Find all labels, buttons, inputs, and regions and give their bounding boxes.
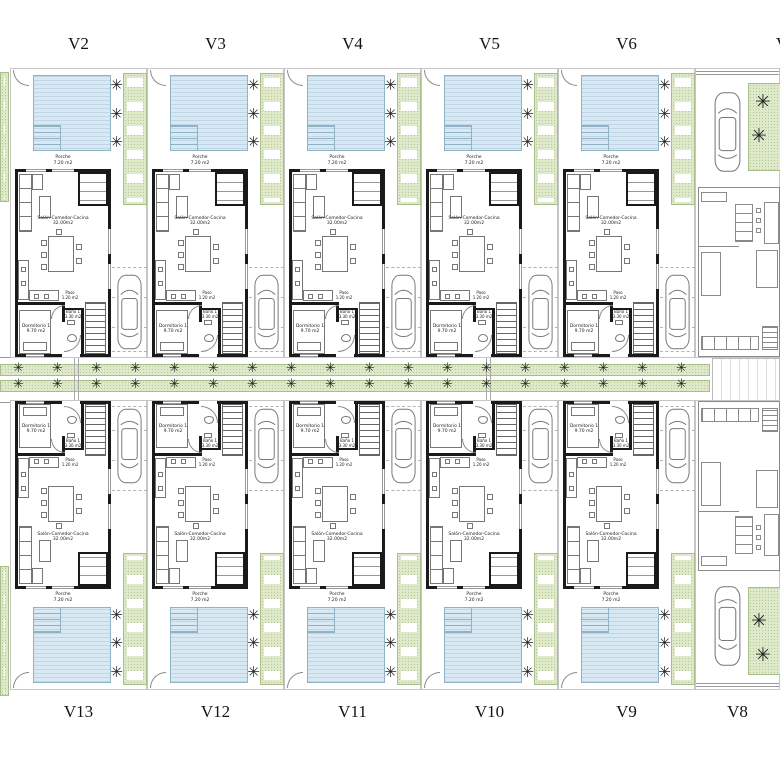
sink [569,267,574,272]
house-outline: Salón-Comedor-Cocina 32.00m2 [15,169,111,357]
garden-gate-arc [561,70,577,86]
sink [171,294,176,299]
chair [452,240,458,246]
swimming-pool [33,75,111,151]
stool [756,208,761,213]
wardrobe [352,172,382,206]
swimming-pool [581,607,659,683]
house-outline: Salón-Comedor-Cocina 32.00m2 [15,401,111,589]
chair [178,512,184,518]
deck-slats [675,78,691,202]
dining-table [185,486,211,522]
room-label-salon: Salón-Comedor-Cocina 32.00m2 [300,216,374,226]
kitchen-counter [566,260,577,300]
unit-label-partial: V [752,34,780,54]
hob [44,294,49,299]
swimming-pool [170,75,248,151]
window [519,469,522,494]
hob [592,294,597,299]
chair [178,500,184,506]
bathroom-sink [615,320,623,325]
staircase [222,404,243,456]
palm-tree-icon: ✳ [90,362,103,375]
chair [315,264,321,270]
toilet [615,334,625,342]
palm-tree-icon: ✳ [109,135,124,150]
deck-slats [401,78,417,202]
palm-tree-icon: ✳ [441,378,454,391]
staircase [222,302,243,354]
driveway [523,259,558,357]
chair [589,488,595,494]
car-icon [115,273,144,351]
window [574,354,592,357]
window [52,169,74,172]
kitchen-counter [577,457,607,468]
villa-plot: ✳ ✳ ✳ Porche 7.20 m2 Salón-Comedor-Cocin… [558,68,695,358]
pillow [160,407,184,416]
window [189,169,211,172]
window [300,354,318,357]
driveway [249,259,284,357]
window [163,586,183,589]
room-label-dormitorio: Dormitorio 1 9.70 m2 [155,324,191,334]
kitchen-counter [701,192,727,202]
window [163,169,183,172]
room-label-dormitorio: Dormitorio 1 9.70 m2 [566,424,602,434]
room-label-dormitorio: Dormitorio 1 9.70 m2 [566,324,602,334]
unit-label: V2 [10,34,147,54]
room-label-bano: Baño 1 3.30 m2 [474,439,494,448]
unit-label: V3 [147,34,284,54]
driveway-line [112,490,147,491]
window [519,229,522,254]
palm-tree-icon: ✳ [109,107,124,122]
window [245,264,248,289]
chair [76,258,82,264]
palm-tree-icon: ✳ [51,378,64,391]
chair [41,252,47,258]
room-label-dormitorio: Dormitorio 1 9.70 m2 [18,324,54,334]
palm-tree-icon: ✳ [168,378,181,391]
palm-tree-icon: ✳ [383,135,398,150]
room-label-paso: Paso 1.20 m2 [469,458,493,467]
kitchen-counter [292,260,303,300]
palm-tree-icon: ✳ [12,362,25,375]
cabinet-row [701,336,759,350]
deck-slats [4,77,5,199]
garden-deck [123,73,147,205]
palm-tree-icon: ✳ [363,362,376,375]
interior-wall [566,453,610,456]
driveway [112,401,147,499]
sofa [306,174,317,190]
room-label-paso: Paso 1.20 m2 [332,458,356,467]
pool-steps [445,125,472,150]
boundary-wall [696,71,779,75]
swimming-pool [444,75,522,151]
driveway [249,401,284,499]
car-icon [252,407,281,485]
sofa [701,462,721,506]
palm-tree-icon: ✳ [246,378,259,391]
kitchen-counter [18,458,29,498]
wardrobe [78,172,108,206]
room-label-salon: Salón-Comedor-Cocina 32.00m2 [437,532,511,542]
window [163,354,181,357]
garden-gate-arc [287,70,303,86]
room-label-dormitorio: Dormitorio 1 9.70 m2 [429,424,465,434]
sink [158,486,163,491]
palm-tree-icon: ✳ [109,608,124,623]
chair [315,240,321,246]
chair [487,258,493,264]
window [108,469,111,494]
pool-steps [308,125,335,150]
chair [330,523,336,529]
garden-deck [671,553,695,685]
room-label-paso: Paso 1.20 m2 [469,291,493,300]
bed [756,250,778,288]
neighbor-garden-strip [0,72,9,202]
sink [432,267,437,272]
driveway-line [523,267,558,268]
chair [178,252,184,258]
driveway [112,259,147,357]
chair [604,229,610,235]
toilet [204,334,214,342]
unit-label: V10 [421,702,558,722]
sofa [701,252,721,296]
coffee-table [450,540,462,562]
palm-tree-icon: ✳ [246,78,261,93]
room-label-paso: Paso 1.20 m2 [606,291,630,300]
chair [487,244,493,250]
chair [315,512,321,518]
toilet [341,334,351,342]
deck-slats [538,556,554,680]
chair [624,508,630,514]
kitchen-counter [292,458,303,498]
room-label-dormitorio: Dormitorio 1 9.70 m2 [18,424,54,434]
hob [455,459,460,464]
hob [432,281,437,286]
villa-plot: ✳ ✳ ✳ Porche 7.20 m2 Salón-Comedor-Cocin… [421,400,558,690]
palm-tree-icon: ✳ [657,135,672,150]
kitchen-counter [429,260,440,300]
window [463,169,485,172]
palm-tree-icon: ✳ [109,665,124,680]
chair [452,488,458,494]
hob [318,294,323,299]
palm-tree-icon: ✳ [51,362,64,375]
driveway-line [112,267,147,268]
palm-tree-icon: ✳ [751,612,766,631]
driveway-line [523,490,558,491]
house-outline: Salón-Comedor-Cocina 32.00m2 [563,401,659,589]
kitchen-counter [577,290,607,301]
window [600,169,622,172]
coffee-table [587,540,599,562]
chair [452,512,458,518]
room-label-salon: Salón-Comedor-Cocina 32.00m2 [574,532,648,542]
chair [213,508,219,514]
pool-steps [582,125,609,150]
room-label-paso: Paso 1.20 m2 [195,291,219,300]
street-mark-line [78,355,79,405]
garden-deck [534,73,558,205]
car-icon [712,89,743,175]
sink [295,267,300,272]
hob [181,294,186,299]
car-icon [252,273,281,351]
window [574,586,594,589]
palm-tree-icon: ✳ [90,378,103,391]
interior-wall [155,453,199,456]
hob [569,281,574,286]
palm-tree-icon: ✳ [657,608,672,623]
chair [41,488,47,494]
deck-slats [401,556,417,680]
pool-steps [171,125,198,150]
room-label-bano: Baño 1 3.30 m2 [63,439,83,448]
unit-label: V9 [558,702,695,722]
palm-tree-icon: ✳ [675,378,688,391]
driveway-line [660,490,695,491]
garden-gate-arc [287,672,303,688]
toilet [67,334,77,342]
window [656,504,659,529]
driveway [660,401,695,499]
bathroom-sink [341,320,349,325]
room-label-salon: Salón-Comedor-Cocina 32.00m2 [437,216,511,226]
palm-tree-icon: ✳ [657,78,672,93]
swimming-pool [581,75,659,151]
house-outline: Salón-Comedor-Cocina 32.00m2 [152,401,248,589]
wardrobe [626,552,656,586]
window [519,264,522,289]
garden-gate-arc [150,70,166,86]
chair [589,500,595,506]
car-icon [663,273,692,351]
coffee-table [176,540,188,562]
interior-wall [566,302,610,305]
pool-steps [34,608,61,633]
room-label-bano: Baño 1 3.30 m2 [337,310,357,319]
palm-tree-icon: ✳ [755,646,770,665]
neighbor-garden-strip [0,566,9,696]
staircase [633,404,654,456]
window [26,169,46,172]
kitchen-counter [429,458,440,498]
house-outline: Salón-Comedor-Cocina 32.00m2 [563,169,659,357]
stool [756,218,761,223]
palm-tree-icon: ✳ [246,135,261,150]
chair [604,523,610,529]
chair [56,229,62,235]
unit-label: V13 [10,702,147,722]
chair [350,508,356,514]
window [382,264,385,289]
chair [589,512,595,518]
window [463,586,485,589]
sofa [32,568,43,584]
palm-tree-icon: ✳ [597,362,610,375]
palm-tree-icon: ✳ [520,78,535,93]
palm-tree-icon: ✳ [246,636,261,651]
pool-steps [582,608,609,633]
chair [589,252,595,258]
pillow [571,342,595,351]
room-label-porche: Porche 7.20 m2 [563,155,659,166]
dining-table [596,236,622,272]
chair [315,500,321,506]
car-icon [526,407,555,485]
sink [569,486,574,491]
chair [589,264,595,270]
pillow [297,407,321,416]
room-label-porche: Porche 7.20 m2 [426,592,522,603]
palm-tree-icon: ✳ [246,107,261,122]
coffee-table [313,196,325,218]
room-label-bano: Baño 1 3.30 m2 [611,310,631,319]
kitchen-counter [566,458,577,498]
room-label-paso: Paso 1.20 m2 [58,291,82,300]
stool [756,525,761,530]
driveway-line [249,490,284,491]
sink [432,486,437,491]
room-label-salon: Salón-Comedor-Cocina 32.00m2 [26,532,100,542]
chair [487,494,493,500]
driveway-line [660,351,695,352]
kitchen-counter [440,457,470,468]
palm-tree-icon: ✳ [109,78,124,93]
driveway-line [386,267,421,268]
coffee-table [39,540,51,562]
sofa [580,568,591,584]
chair [350,244,356,250]
unit-label: V12 [147,702,284,722]
deck-slats [4,571,5,693]
chair [178,488,184,494]
palm-tree-icon: ✳ [519,378,532,391]
pedestrian-crossing [712,358,780,402]
chair [213,494,219,500]
room-label-dormitorio: Dormitorio 1 9.70 m2 [155,424,191,434]
driveway-line [386,490,421,491]
palm-tree-icon: ✳ [324,378,337,391]
deck-slats [264,78,280,202]
street-mark-line [74,355,75,405]
garden-deck [123,553,147,685]
window [656,469,659,494]
chair [467,229,473,235]
stool [756,535,761,540]
hob [295,281,300,286]
sofa [580,174,591,190]
room-label-paso: Paso 1.20 m2 [195,458,219,467]
interior-wall [429,302,473,305]
wardrobe [489,552,519,586]
kitchen-counter [155,458,166,498]
unit-label-v8: V8 [695,702,780,722]
palm-tree-icon: ✳ [441,362,454,375]
window [656,264,659,289]
sofa [306,568,317,584]
palm-tree-icon: ✳ [520,135,535,150]
kitchen-counter [303,457,333,468]
garden-deck [397,553,421,685]
window [189,586,211,589]
kitchen-counter [29,290,59,301]
room-label-salon: Salón-Comedor-Cocina 32.00m2 [26,216,100,226]
bathroom-sink [204,320,212,325]
window [108,229,111,254]
boundary-wall [696,683,779,687]
palm-tree-icon: ✳ [324,362,337,375]
chair [76,244,82,250]
window [108,264,111,289]
sink [158,267,163,272]
hob [158,472,163,477]
villa-plot: ✳ ✳ ✳ Porche 7.20 m2 Salón-Comedor-Cocin… [284,68,421,358]
dining-table [322,486,348,522]
palm-tree-icon: ✳ [520,665,535,680]
chair [213,258,219,264]
room-label-paso: Paso 1.20 m2 [606,458,630,467]
chair [315,252,321,258]
hob [44,459,49,464]
garden-deck [260,73,284,205]
villa-plot: ✳ ✳ ✳ Porche 7.20 m2 Salón-Comedor-Cocin… [284,400,421,690]
staircase [633,302,654,354]
window [600,586,622,589]
pillow [160,342,184,351]
driveway-line [249,267,284,268]
stool [756,228,761,233]
chair [178,240,184,246]
villa-plot: ✳ ✳ ✳ Porche 7.20 m2 Salón-Comedor-Cocin… [147,400,284,690]
dining-table [48,236,74,272]
staircase [496,404,517,456]
dining-table [764,514,779,556]
kitchen-counter [18,260,29,300]
chair [624,494,630,500]
garden-deck [397,73,421,205]
interior-wall [699,246,739,247]
unit-label: V11 [284,702,421,722]
room-label-dormitorio: Dormitorio 1 9.70 m2 [292,324,328,334]
bathroom-sink [67,320,75,325]
room-label-bano: Baño 1 3.30 m2 [474,310,494,319]
driveway-line [386,351,421,352]
hob [158,281,163,286]
hob [318,459,323,464]
car-icon [389,407,418,485]
room-label-salon: Salón-Comedor-Cocina 32.00m2 [163,532,237,542]
room-label-porche: Porche 7.20 m2 [563,592,659,603]
car-icon [526,273,555,351]
palm-tree-icon: ✳ [129,362,142,375]
chair [330,229,336,235]
coffee-table [450,196,462,218]
sink [21,267,26,272]
hob [295,472,300,477]
sink [34,459,39,464]
kitchen-counter [166,457,196,468]
interior-wall [292,453,336,456]
palm-tree-icon: ✳ [383,665,398,680]
